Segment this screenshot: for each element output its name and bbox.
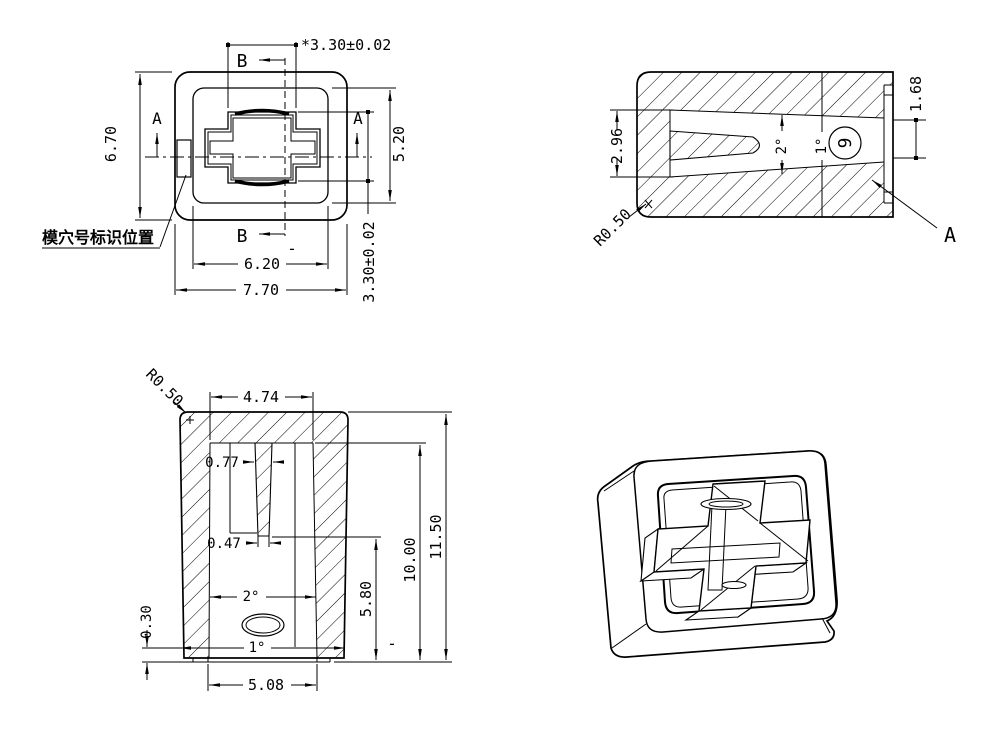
cross-stem-outer xyxy=(205,112,320,183)
dim-draft-outer-a: 1° xyxy=(814,138,830,155)
mold-cavity-note: 模穴号标识位置 xyxy=(42,228,154,247)
section-b-view: 1° 2° R0.50 4.74 0.77 0.47 0.30 xyxy=(139,365,452,694)
dim-rib-bottom: 0.47 xyxy=(207,536,241,552)
section-b-label-bottom: B xyxy=(237,226,248,247)
dim-rib-top: 0.77 xyxy=(205,455,239,471)
section-b-label-top: B xyxy=(237,51,248,72)
dim-draft-inner-a: 2° xyxy=(774,138,790,155)
dim-height-mid: 5.80 xyxy=(357,581,375,617)
dim-slot-left: 2.96 xyxy=(608,128,626,164)
dim-draft-inner-b: 2° xyxy=(243,589,260,605)
tick-mark: - xyxy=(287,239,297,258)
cross-stem-chamfer xyxy=(208,115,317,180)
dim-cavity-top: 4.74 xyxy=(243,388,279,406)
gate-arc-top xyxy=(235,111,289,115)
cavity-number: 9 xyxy=(835,138,856,149)
dim-corner-radius-a: R0.50 xyxy=(590,205,635,250)
dim-height-total: 11.50 xyxy=(427,514,445,559)
engineering-drawing-canvas: B B A A *3.30±0.02 6.70 5.20 3.30±0.02 xyxy=(0,0,1000,750)
dim-recess-height: 5.20 xyxy=(390,126,408,162)
dim-corner-radius-b: R0.50 xyxy=(142,365,187,410)
center-rib xyxy=(255,443,272,536)
keycap-outer-outline xyxy=(175,72,347,220)
isometric-view xyxy=(598,451,837,657)
gate-arc-bottom xyxy=(235,181,289,185)
cross-slot xyxy=(210,118,315,178)
dim-draft-outer-b: 1° xyxy=(249,640,266,656)
section-a-label-left: A xyxy=(152,109,162,128)
cavity-number-pad xyxy=(177,140,191,177)
view-a-label: A xyxy=(944,223,956,247)
dim-slot-right: 1.68 xyxy=(907,76,925,112)
plan-view: B B A A *3.30±0.02 6.70 5.20 3.30±0.02 xyxy=(42,36,408,303)
iso-dimple-small xyxy=(722,582,746,589)
dim-body-height: 6.70 xyxy=(102,126,120,162)
section-a-view: 2° 1° 9 2.96 1.68 R0.50 A xyxy=(590,72,956,250)
dim-lip: 0.30 xyxy=(139,605,155,639)
dim-height-cavity: 10.00 xyxy=(401,537,419,582)
dim-slot-width: *3.30±0.02 xyxy=(301,36,391,54)
dim-slot-height: 3.30±0.02 xyxy=(360,221,378,302)
tick-mark-b: - xyxy=(387,634,397,653)
note-leader xyxy=(160,175,186,247)
cad-drawing: B B A A *3.30±0.02 6.70 5.20 3.30±0.02 xyxy=(0,0,1000,750)
dim-bottom-opening: 5.08 xyxy=(248,676,284,694)
dim-recess-width: 6.20 xyxy=(244,255,280,273)
dim-body-width: 7.70 xyxy=(243,281,279,299)
